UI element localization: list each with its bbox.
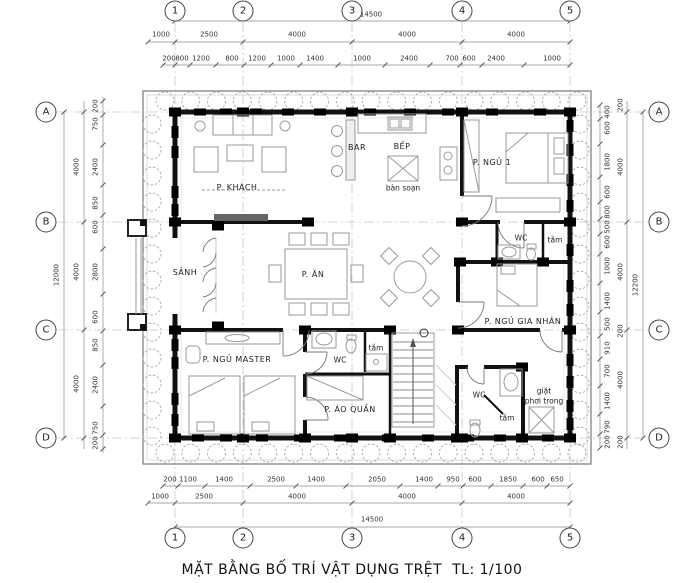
- grid-bubble-row-c: C: [36, 320, 57, 341]
- dim-bottom-major-0: 1000: [151, 494, 169, 501]
- washing-machine: [529, 407, 554, 433]
- dim-left-minor-7: 850: [93, 338, 100, 351]
- kitchen-island: [388, 156, 418, 181]
- dim-right-minor-0: 400: [605, 105, 612, 118]
- dresser-1: [496, 198, 560, 212]
- bed-maid: [497, 264, 537, 306]
- tv-cabinet: [214, 214, 268, 221]
- dim-bottom-minor-1: 1100: [179, 477, 197, 484]
- dim-left-minor-5: 2800: [93, 263, 100, 281]
- dim-left-overall: 12000: [54, 264, 61, 286]
- dim-left-minor-6: 600: [93, 310, 100, 323]
- floor-plan-sheet: 1 2 3 4 5 1 2 3 4 5 A B C D A B C D 1450…: [0, 0, 700, 583]
- floor-plan-drawing: [0, 0, 700, 583]
- wc-top-fixtures: [498, 244, 536, 260]
- dim-right-major-1: 4000: [618, 263, 625, 281]
- room-label-bath-master: tắm: [369, 344, 384, 352]
- dim-left-minor-3: 850: [93, 196, 100, 209]
- room-label-laundry-1: giặt: [537, 387, 551, 395]
- room-label-wc-top: WC: [515, 234, 528, 242]
- beds-master: [189, 376, 295, 434]
- room-label-wardrobe-room: P. ÁO QUẦN: [324, 406, 375, 414]
- dim-left-major-1: 4000: [74, 263, 81, 281]
- dim-top-minor-2: 1200: [192, 56, 210, 63]
- dim-bottom-minor-8: 600: [468, 477, 481, 484]
- dim-left-minor-2: 2400: [93, 158, 100, 176]
- room-label-kitchen: BẾP: [394, 143, 411, 151]
- dim-top-minor-5: 1000: [277, 56, 295, 63]
- dim-top-minor-7: 1000: [353, 56, 371, 63]
- room-label-hall: SẢNH: [173, 269, 198, 277]
- grid-bubble-row-d: D: [36, 428, 57, 449]
- dim-top-minor-11: 2400: [487, 56, 505, 63]
- room-label-master-bedroom: P. NGỦ MASTER: [203, 356, 272, 364]
- grid-bubble-row-b: B: [36, 212, 57, 233]
- dim-right-minor-1: 600: [605, 121, 612, 134]
- grid-bubble-col-4: 4: [452, 1, 473, 22]
- grid-bubble-col-1-bottom: 1: [165, 528, 186, 549]
- grid-bubble-row-d-right: D: [649, 428, 670, 449]
- grid-bubble-col-5: 5: [560, 1, 581, 22]
- dim-bottom-overall: 14500: [361, 517, 383, 524]
- dim-right-offset-2: 200: [618, 435, 625, 448]
- room-label-living: P. KHÁCH: [217, 184, 258, 192]
- grid-bubble-row-c-right: C: [649, 320, 670, 341]
- dim-right-minor-5: 500: [605, 220, 612, 233]
- dim-bottom-major-3: 4000: [398, 494, 416, 501]
- dim-top-minor-1: 800: [175, 56, 188, 63]
- dim-bottom-minor-3: 2500: [267, 477, 285, 484]
- dim-left-minor-8: 2400: [93, 376, 100, 394]
- dim-bottom-minor-2: 1400: [215, 477, 233, 484]
- room-label-prep-table: bàn soạn: [386, 184, 420, 192]
- dim-top-major-2: 4000: [288, 32, 306, 39]
- grid-bubble-row-a: A: [36, 102, 57, 123]
- dim-bottom-major-2: 4000: [288, 494, 306, 501]
- dim-right-minor-10: 910: [605, 341, 612, 354]
- dim-bottom-minor-9: 1850: [499, 477, 517, 484]
- dim-top-overall: 14500: [360, 12, 382, 19]
- room-label-dining: P. ĂN: [302, 271, 325, 279]
- dim-right-minor-13: 790: [605, 420, 612, 433]
- dim-right-minor-3: 600: [605, 185, 612, 198]
- bed-1: [506, 133, 568, 183]
- dim-right-minor-14: 200: [605, 435, 612, 448]
- dim-top-minor-0: 200: [162, 56, 175, 63]
- dim-top-minor-8: 2400: [400, 56, 418, 63]
- round-table-set: [381, 248, 440, 307]
- door-swings: [203, 196, 562, 420]
- drawing-title: MẶT BẰNG BỐ TRÍ VẬT DỤNG TRỆT TL: 1/100: [182, 562, 523, 578]
- dim-bottom-major-1: 2500: [195, 494, 213, 501]
- sofa-set: [194, 115, 290, 190]
- folding-door-icon: [203, 238, 216, 252]
- dim-right-major-0: 4000: [618, 158, 625, 176]
- dim-right-major-2: 4000: [618, 371, 625, 389]
- room-label-wc-bottom: WC: [473, 391, 486, 399]
- dim-top-minor-3: 800: [225, 56, 238, 63]
- grid-bubble-col-2: 2: [233, 1, 254, 22]
- room-label-bedroom-1: P. NGỦ 1: [473, 159, 511, 167]
- dim-top-major-4: 4000: [507, 32, 525, 39]
- dim-top-major-0: 1000: [152, 32, 170, 39]
- dim-bottom-major-4: 4000: [507, 494, 525, 501]
- dim-top-major-1: 2500: [200, 32, 218, 39]
- dim-right-overall: 12200: [633, 274, 640, 296]
- dim-left-major-2: 4000: [74, 375, 81, 393]
- room-label-bath-top: tắm: [548, 236, 563, 244]
- grid-bubble-col-4-bottom: 4: [452, 528, 473, 549]
- dim-right-minor-4: 800: [605, 205, 612, 218]
- grid-bubble-col-2-bottom: 2: [233, 528, 254, 549]
- dim-right-offset-1: 200: [618, 324, 625, 337]
- wardrobe-1: [464, 120, 479, 192]
- dim-right-minor-9: 500: [605, 317, 612, 330]
- dim-right-minor-11: 700: [605, 364, 612, 377]
- dim-top-minor-9: 700: [445, 56, 458, 63]
- grid-bubble-row-b-right: B: [649, 212, 670, 233]
- dim-bottom-minor-6: 1400: [415, 477, 433, 484]
- dim-top-minor-6: 1400: [306, 56, 324, 63]
- window-sills: [172, 109, 574, 442]
- dim-right-minor-12: 1400: [605, 392, 612, 410]
- room-label-laundry-2: phơi trong: [525, 397, 564, 405]
- grid-bubble-col-5-bottom: 5: [560, 528, 581, 549]
- grid-bubble-col-3-bottom: 3: [342, 528, 363, 549]
- dim-left-minor-10: 200: [93, 436, 100, 449]
- room-label-bath-bottom: tắm: [500, 414, 515, 422]
- dim-bottom-minor-0: 200: [163, 477, 176, 484]
- dim-left-minor-4: 600: [93, 220, 100, 233]
- dim-bottom-minor-10: 600: [531, 477, 544, 484]
- dim-left-major-0: 4000: [74, 158, 81, 176]
- dim-top-minor-10: 600: [462, 56, 475, 63]
- wardrobe-closet: [307, 376, 363, 400]
- dim-left-minor-1: 750: [93, 117, 100, 130]
- dim-top-minor-4: 1200: [248, 56, 266, 63]
- dim-bottom-minor-5: 2050: [368, 477, 386, 484]
- dim-right-offset-0: 200: [618, 98, 625, 111]
- grid-bubble-col-1: 1: [165, 1, 186, 22]
- dim-left-minor-0: 200: [93, 99, 100, 112]
- wc-bottom-fixtures: [470, 369, 522, 437]
- dim-right-minor-8: 1400: [605, 292, 612, 310]
- dim-right-minor-7: 1000: [605, 257, 612, 275]
- dim-right-minor-2: 1800: [605, 153, 612, 171]
- room-label-wc-master: WC: [334, 356, 347, 364]
- room-label-bar: BAR: [348, 144, 366, 152]
- room-label-maid-bedroom: P. NGỦ GIA NHÂN: [485, 318, 562, 326]
- wall-piers: [169, 108, 576, 443]
- grid-bubble-row-a-right: A: [649, 102, 670, 123]
- dim-bottom-minor-11: 650: [550, 477, 563, 484]
- dim-bottom-minor-4: 1400: [307, 477, 325, 484]
- dim-right-minor-6: 600: [605, 235, 612, 248]
- dim-top-major-3: 4000: [398, 32, 416, 39]
- dim-bottom-minor-7: 950: [446, 477, 459, 484]
- stairs: [392, 329, 456, 427]
- dim-left-minor-9: 750: [93, 421, 100, 434]
- dim-top-minor-12: 1000: [543, 56, 561, 63]
